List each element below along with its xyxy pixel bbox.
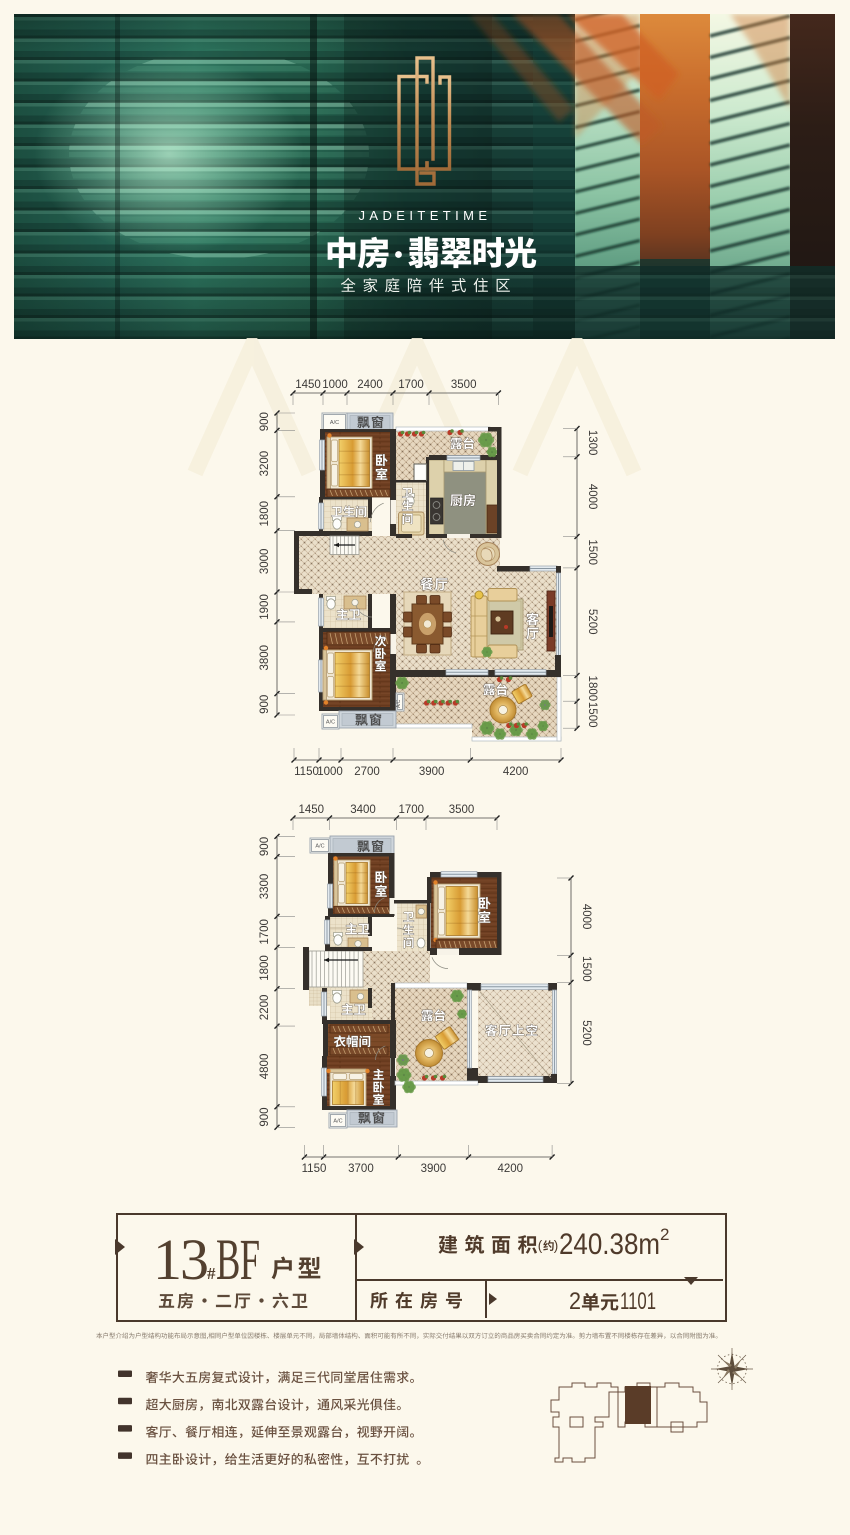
svg-text:900: 900 <box>259 695 271 714</box>
svg-text:1800: 1800 <box>259 501 271 527</box>
svg-text:1800: 1800 <box>259 955 271 981</box>
svg-text:4200: 4200 <box>498 1163 524 1175</box>
svg-text:3500: 3500 <box>451 379 477 391</box>
svg-text:1150: 1150 <box>294 766 319 778</box>
svg-text:900: 900 <box>259 1107 271 1126</box>
svg-text:1500: 1500 <box>586 539 598 565</box>
svg-text:900: 900 <box>259 412 271 431</box>
svg-text:1150: 1150 <box>302 1163 327 1175</box>
svg-text:4200: 4200 <box>503 766 529 778</box>
svg-text:2400: 2400 <box>357 379 383 391</box>
svg-text:1500: 1500 <box>580 956 592 982</box>
svg-text:1700: 1700 <box>398 379 424 391</box>
svg-text:A/C: A/C <box>330 420 339 426</box>
svg-text:4000: 4000 <box>586 484 598 510</box>
svg-text:3300: 3300 <box>259 874 271 900</box>
svg-text:4800: 4800 <box>259 1054 271 1080</box>
svg-text:3700: 3700 <box>348 1163 374 1175</box>
svg-text:1700: 1700 <box>259 919 271 945</box>
svg-text:1900: 1900 <box>259 594 271 620</box>
svg-text:3000: 3000 <box>259 549 271 575</box>
svg-text:1300: 1300 <box>586 430 598 456</box>
svg-text:A/C: A/C <box>396 699 402 708</box>
svg-text:3200: 3200 <box>259 451 271 477</box>
svg-text:1700: 1700 <box>398 804 424 816</box>
svg-text:3800: 3800 <box>259 645 271 671</box>
svg-text:A/C: A/C <box>333 1119 342 1125</box>
svg-text:A/C: A/C <box>326 720 335 726</box>
svg-text:1000: 1000 <box>317 766 343 778</box>
svg-text:4000: 4000 <box>580 904 592 930</box>
svg-text:900: 900 <box>259 837 271 856</box>
svg-text:1000: 1000 <box>322 379 348 391</box>
svg-text:3400: 3400 <box>350 804 376 816</box>
svg-text:1800: 1800 <box>586 676 598 702</box>
svg-text:3900: 3900 <box>421 1163 447 1175</box>
svg-text:A/C: A/C <box>315 844 324 850</box>
svg-text:2700: 2700 <box>354 766 380 778</box>
svg-text:1450: 1450 <box>298 804 324 816</box>
svg-text:5200: 5200 <box>586 609 598 635</box>
svg-text:2200: 2200 <box>259 995 271 1021</box>
svg-text:1500: 1500 <box>586 702 598 728</box>
svg-text:1450: 1450 <box>295 379 321 391</box>
svg-text:3900: 3900 <box>419 766 445 778</box>
svg-text:3500: 3500 <box>449 804 475 816</box>
svg-text:5200: 5200 <box>580 1020 592 1046</box>
